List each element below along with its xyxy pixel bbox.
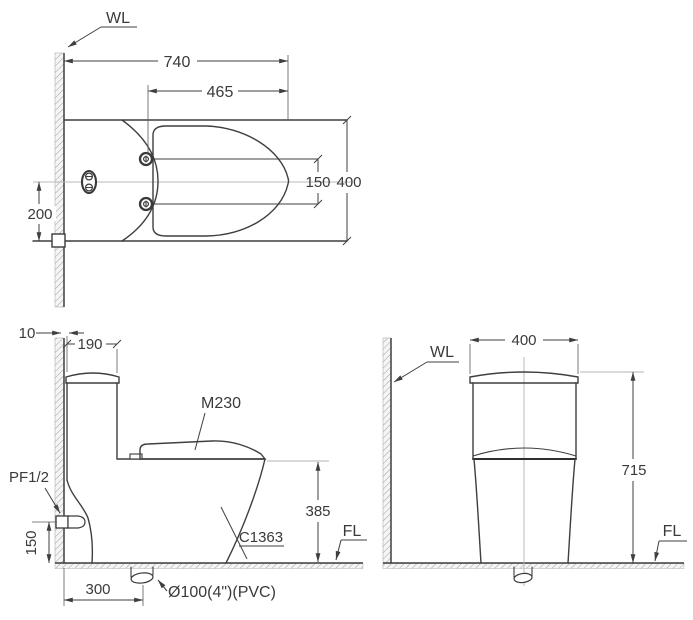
hinge-bolt-lower (140, 198, 152, 210)
drain-stub-front (514, 567, 533, 584)
wall-line-label-top: WL (106, 10, 130, 27)
dim-10: 10 (19, 325, 84, 342)
side-view: 10 190 M230 PF1/2 150 (9, 325, 367, 606)
svg-text:FL: FL (343, 523, 362, 540)
floor-section-front-view (383, 563, 684, 569)
dim-190: 190 (63, 336, 121, 373)
dim-200: 200 (24, 182, 56, 241)
svg-text:200: 200 (27, 206, 52, 223)
dim-740: 740 (64, 54, 288, 120)
bowl-front-profile (226, 459, 265, 563)
svg-text:150: 150 (23, 530, 40, 555)
supply-connection-square (52, 234, 65, 247)
wall-section-side-view (55, 338, 64, 563)
svg-text:400: 400 (336, 174, 361, 191)
front-view: WL 400 (383, 332, 687, 586)
wall-section-front-view (383, 338, 391, 568)
seat-lid-outline (153, 126, 289, 236)
svg-text:465: 465 (207, 84, 234, 101)
wall-line-callout-top: WL (68, 10, 137, 47)
seat-side-profile (117, 441, 265, 459)
hinge-bolt-upper (140, 153, 152, 165)
floor-line-callout-front: FL (655, 523, 687, 561)
svg-text:190: 190 (77, 336, 102, 353)
drain-callout: Ø100(4")(PVC) (158, 580, 276, 601)
svg-text:Ø100(4")(PVC): Ø100(4")(PVC) (168, 584, 276, 601)
water-inlet-fitting (56, 516, 85, 528)
dim-400-plan: 400 (336, 116, 361, 245)
bowl-model-callout: C1363 (221, 507, 284, 559)
svg-text:M230: M230 (201, 395, 241, 412)
svg-text:715: 715 (621, 462, 646, 479)
fixture-plan-outline (33, 120, 347, 241)
wall-line-callout-front: WL (394, 344, 459, 382)
svg-text:150: 150 (305, 174, 330, 191)
tank-side-profile (66, 373, 119, 480)
svg-text:385: 385 (305, 503, 330, 520)
dim-715: 715 (580, 372, 647, 563)
svg-text:WL: WL (430, 344, 454, 361)
drawing-canvas: WL (0, 0, 693, 620)
top-view: WL (24, 10, 362, 307)
flush-button (82, 171, 96, 193)
supply-callout: PF1/2 (9, 469, 60, 513)
svg-text:740: 740 (164, 54, 191, 71)
svg-text:PF1/2: PF1/2 (9, 469, 49, 486)
svg-text:300: 300 (85, 581, 110, 598)
svg-text:FL: FL (663, 523, 682, 540)
dim-150-hinge: 150 (305, 155, 330, 208)
svg-text:400: 400 (511, 332, 536, 349)
dim-150-supply-height: 150 (23, 522, 57, 563)
svg-text:10: 10 (19, 325, 36, 342)
dim-385: 385 (267, 461, 331, 562)
floor-line-callout-side: FL (336, 523, 367, 560)
floor-section-side-view (55, 563, 363, 569)
technical-drawing-page: WL (0, 0, 693, 620)
svg-text:C1363: C1363 (239, 529, 283, 546)
drain-pipe (130, 567, 153, 584)
wall-section-top-view (55, 53, 64, 307)
